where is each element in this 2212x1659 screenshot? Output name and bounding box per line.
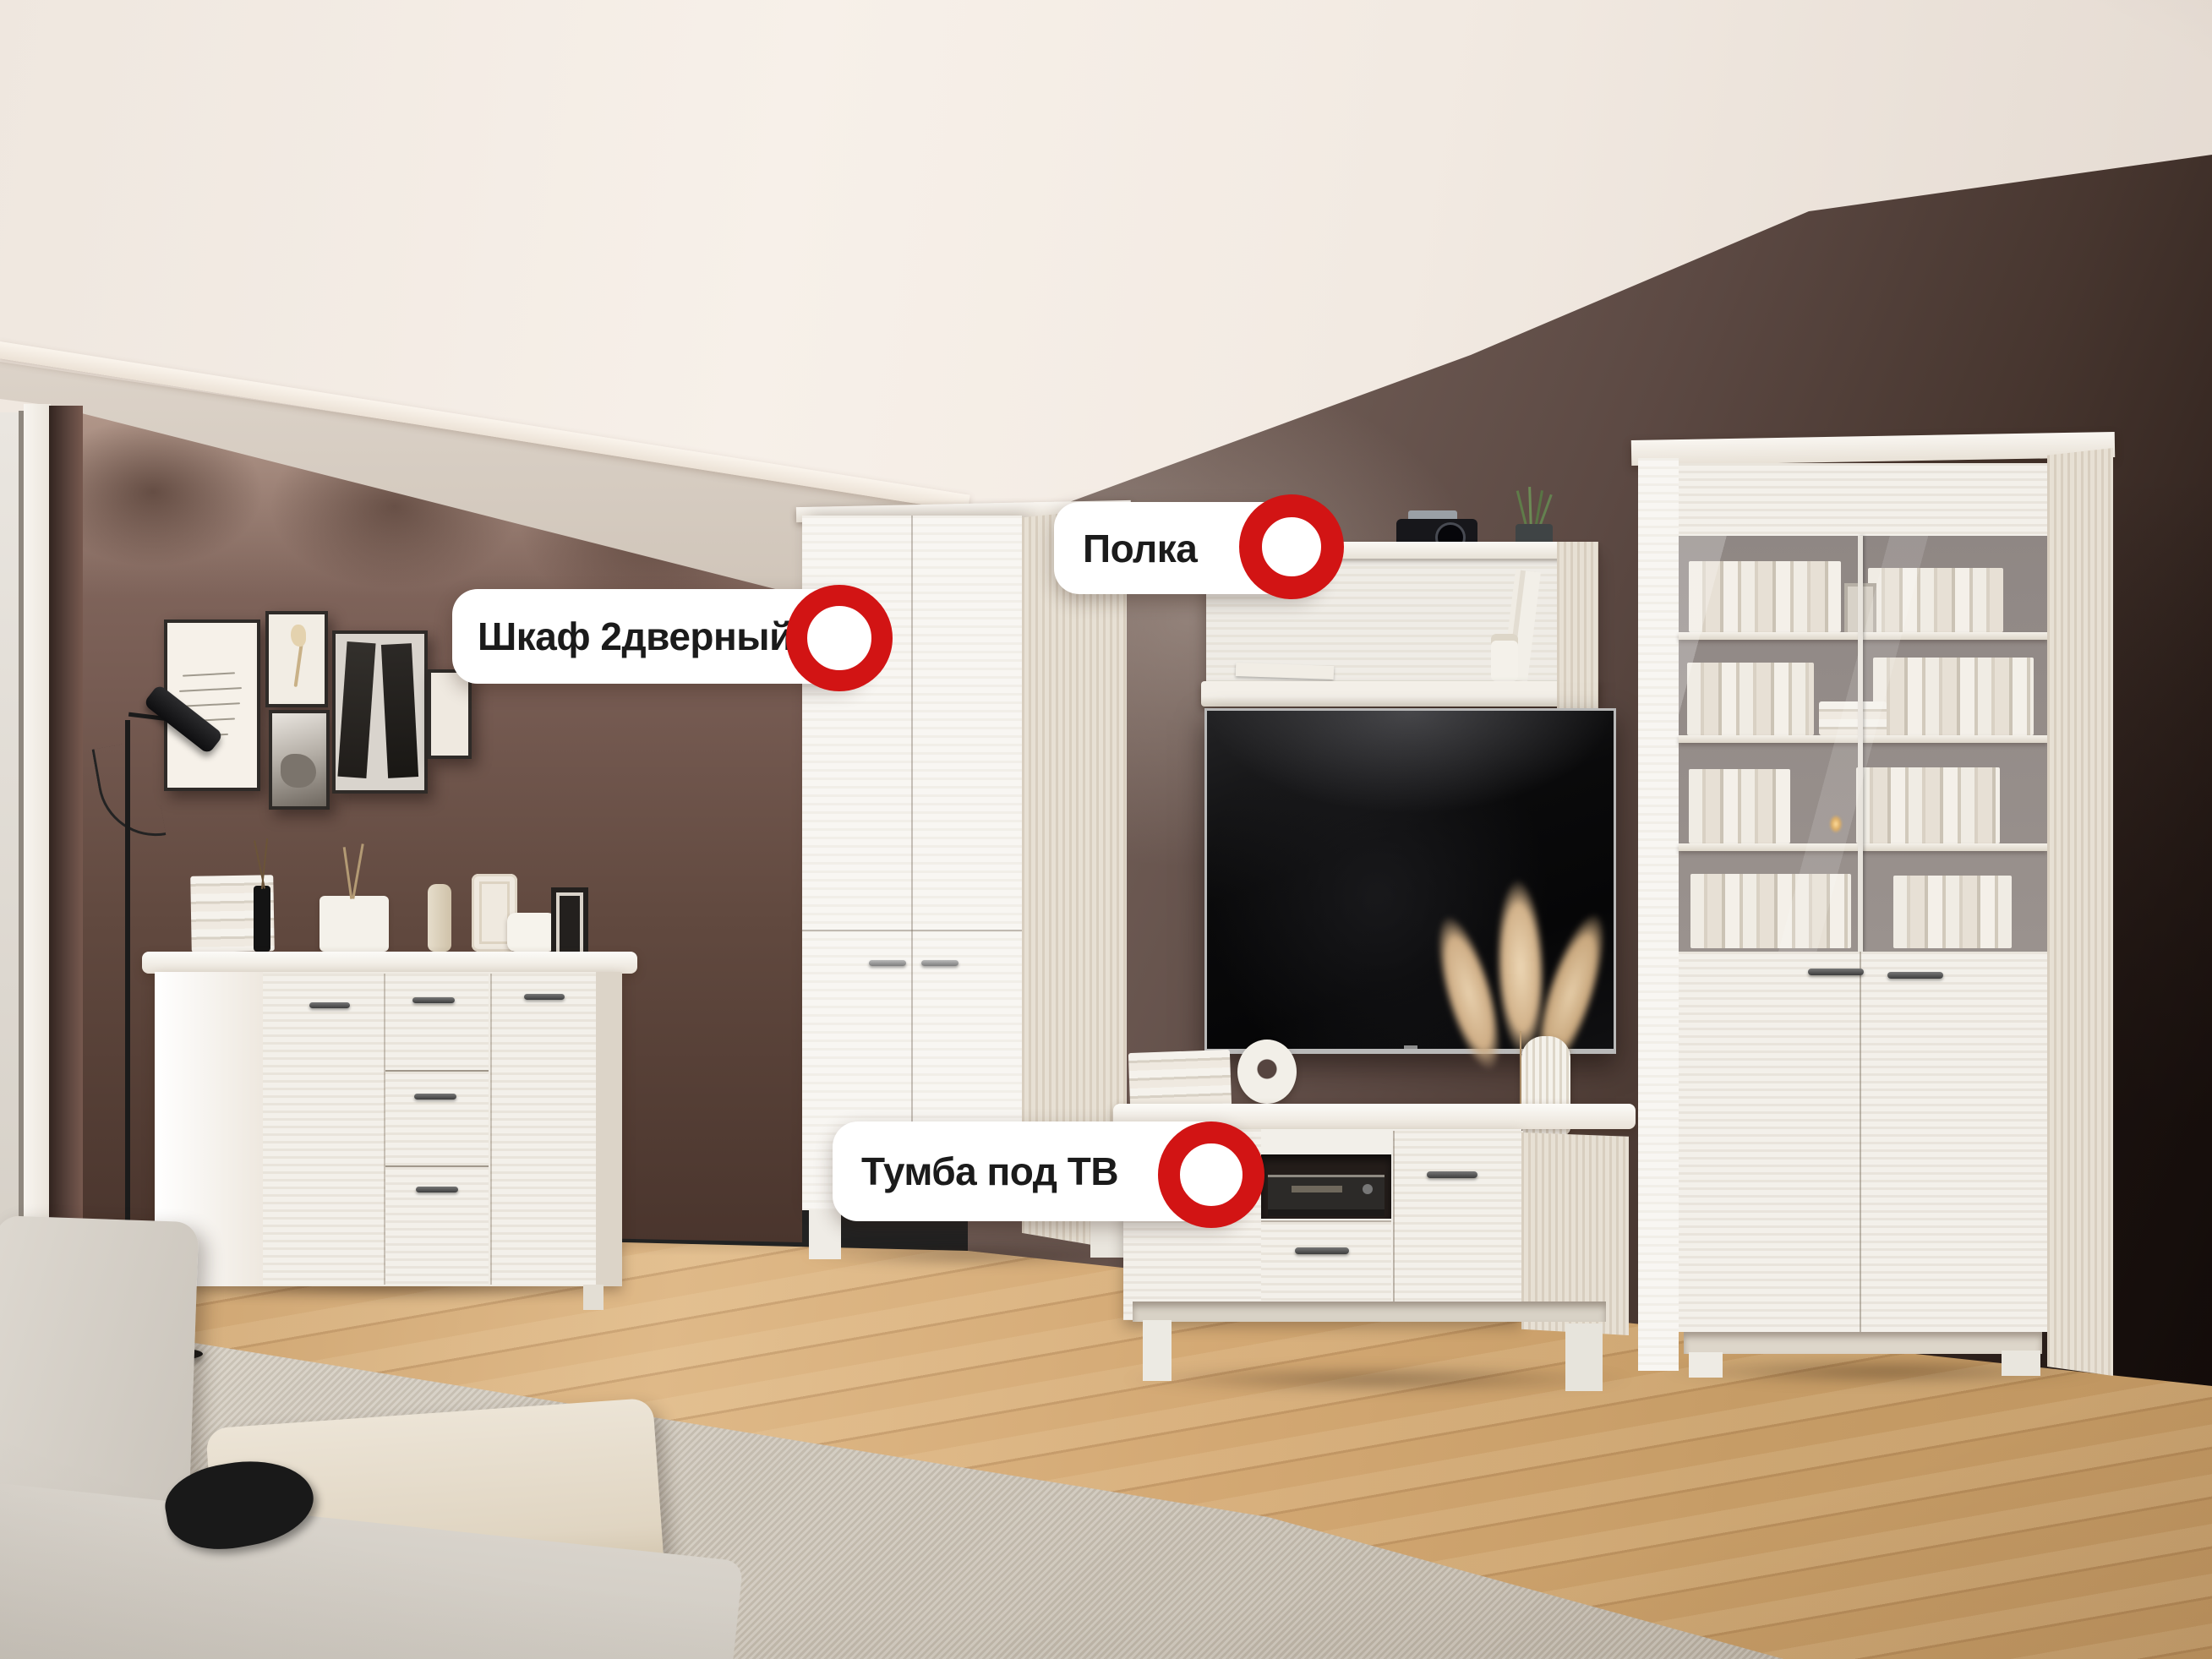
tv-stand-leg xyxy=(1143,1320,1172,1381)
tv-stand-door-handle xyxy=(1427,1171,1477,1178)
bookcase-side-panel xyxy=(2047,448,2113,1376)
living-room-scene: Шкаф 2дверный Полка Тумба под ТВ xyxy=(0,0,2212,1659)
bookcase-lower-doors xyxy=(1679,952,2047,1332)
bookcase-top xyxy=(1631,432,2115,466)
sideboard-drawer-1 xyxy=(385,974,489,1072)
decor-books xyxy=(1128,1050,1232,1109)
script-line xyxy=(179,687,242,692)
sideboard-drawer-2 xyxy=(385,1072,489,1167)
wardrobe-divider xyxy=(802,930,1022,931)
gallery-frame-photo-small xyxy=(269,710,330,810)
tv-stand-drawer-handle xyxy=(1295,1247,1349,1254)
photo-figure xyxy=(381,643,418,778)
sideboard-drawer-3 xyxy=(385,1167,489,1285)
stereo-display xyxy=(1292,1186,1342,1192)
twig xyxy=(352,843,363,899)
sideboard-drawer-2-handle xyxy=(414,1094,456,1100)
wardrobe-handle-left xyxy=(869,960,906,966)
sideboard-door-right xyxy=(490,974,598,1285)
plant-leaf xyxy=(1516,490,1528,527)
bookcase-handle-right xyxy=(1887,972,1943,979)
window-glass xyxy=(0,412,19,1274)
sideboard-drawer-3-handle xyxy=(416,1187,458,1192)
sideboard-door-left xyxy=(263,974,385,1285)
hotspot-wardrobe[interactable]: Шкаф 2дверный xyxy=(452,589,865,684)
sideboard-top xyxy=(142,952,637,974)
gallery-frame-light xyxy=(428,669,472,759)
glass-reflection xyxy=(1679,536,2047,952)
gallery-frame-flower xyxy=(265,611,328,707)
bookcase-glass xyxy=(1679,536,2047,952)
shelf-bottom-board xyxy=(1201,681,1598,707)
hotspot-wardrobe-label: Шкаф 2дверный xyxy=(478,614,793,659)
vase-small xyxy=(428,884,451,952)
photo-shape xyxy=(281,754,316,788)
hotspot-wardrobe-marker[interactable] xyxy=(786,585,893,691)
photo-figure xyxy=(337,641,375,778)
tv-stand-niche xyxy=(1261,1154,1391,1219)
sideboard-body xyxy=(155,972,622,1286)
hotspot-tv-stand-marker[interactable] xyxy=(1158,1121,1264,1228)
flower-petal xyxy=(291,625,306,647)
wardrobe-door-split xyxy=(911,516,913,1210)
sideboard-door-left-handle xyxy=(309,1002,350,1008)
shelf-jar xyxy=(1491,634,1518,681)
decor-round-box xyxy=(507,913,556,952)
bookcase-leg xyxy=(1689,1352,1723,1378)
window xyxy=(0,404,51,1283)
sideboard xyxy=(135,832,642,1322)
hotspot-tv-stand[interactable]: Тумба под ТВ xyxy=(833,1121,1240,1221)
bookcase-handle-left xyxy=(1808,969,1864,975)
sideboard-door-right-handle xyxy=(524,994,565,1000)
script-line xyxy=(183,672,235,676)
bookcase-plinth xyxy=(1684,1332,2042,1354)
wardrobe-leg xyxy=(809,1210,841,1259)
gallery-frame-couple xyxy=(332,630,428,794)
bookcase-leg xyxy=(2002,1351,2040,1376)
sideboard-drawer-1-handle xyxy=(412,997,455,1003)
door-split xyxy=(1860,952,1861,1332)
hotspot-shelf-label: Полка xyxy=(1083,526,1197,571)
plant-leaf xyxy=(1528,487,1532,529)
shelf-side-panel xyxy=(1557,542,1598,711)
decor-box-twigs xyxy=(320,896,389,952)
bookcase-header xyxy=(1679,463,2047,536)
twig xyxy=(343,847,353,899)
tv-stand-plinth xyxy=(1133,1302,1606,1322)
wardrobe-handle-right xyxy=(921,960,959,966)
stereo-knob xyxy=(1363,1184,1373,1194)
window-frame xyxy=(24,404,51,1283)
bookcase-left-stile xyxy=(1638,458,1679,1371)
bookcase xyxy=(1627,423,2126,1386)
hotspot-shelf[interactable]: Полка xyxy=(1054,502,1320,594)
diffuser-bottle xyxy=(254,886,270,952)
stereo xyxy=(1268,1175,1385,1216)
donut-vase xyxy=(1237,1040,1297,1104)
tv-stand-leg xyxy=(1565,1323,1603,1391)
hotspot-shelf-marker[interactable] xyxy=(1239,494,1344,599)
decor-photo-frame xyxy=(551,887,588,960)
hotspot-tv-stand-label: Тумба под ТВ xyxy=(861,1149,1118,1194)
tv-stand-door xyxy=(1393,1131,1523,1320)
sideboard-leg xyxy=(583,1285,604,1310)
sideboard-side-right xyxy=(596,972,622,1286)
